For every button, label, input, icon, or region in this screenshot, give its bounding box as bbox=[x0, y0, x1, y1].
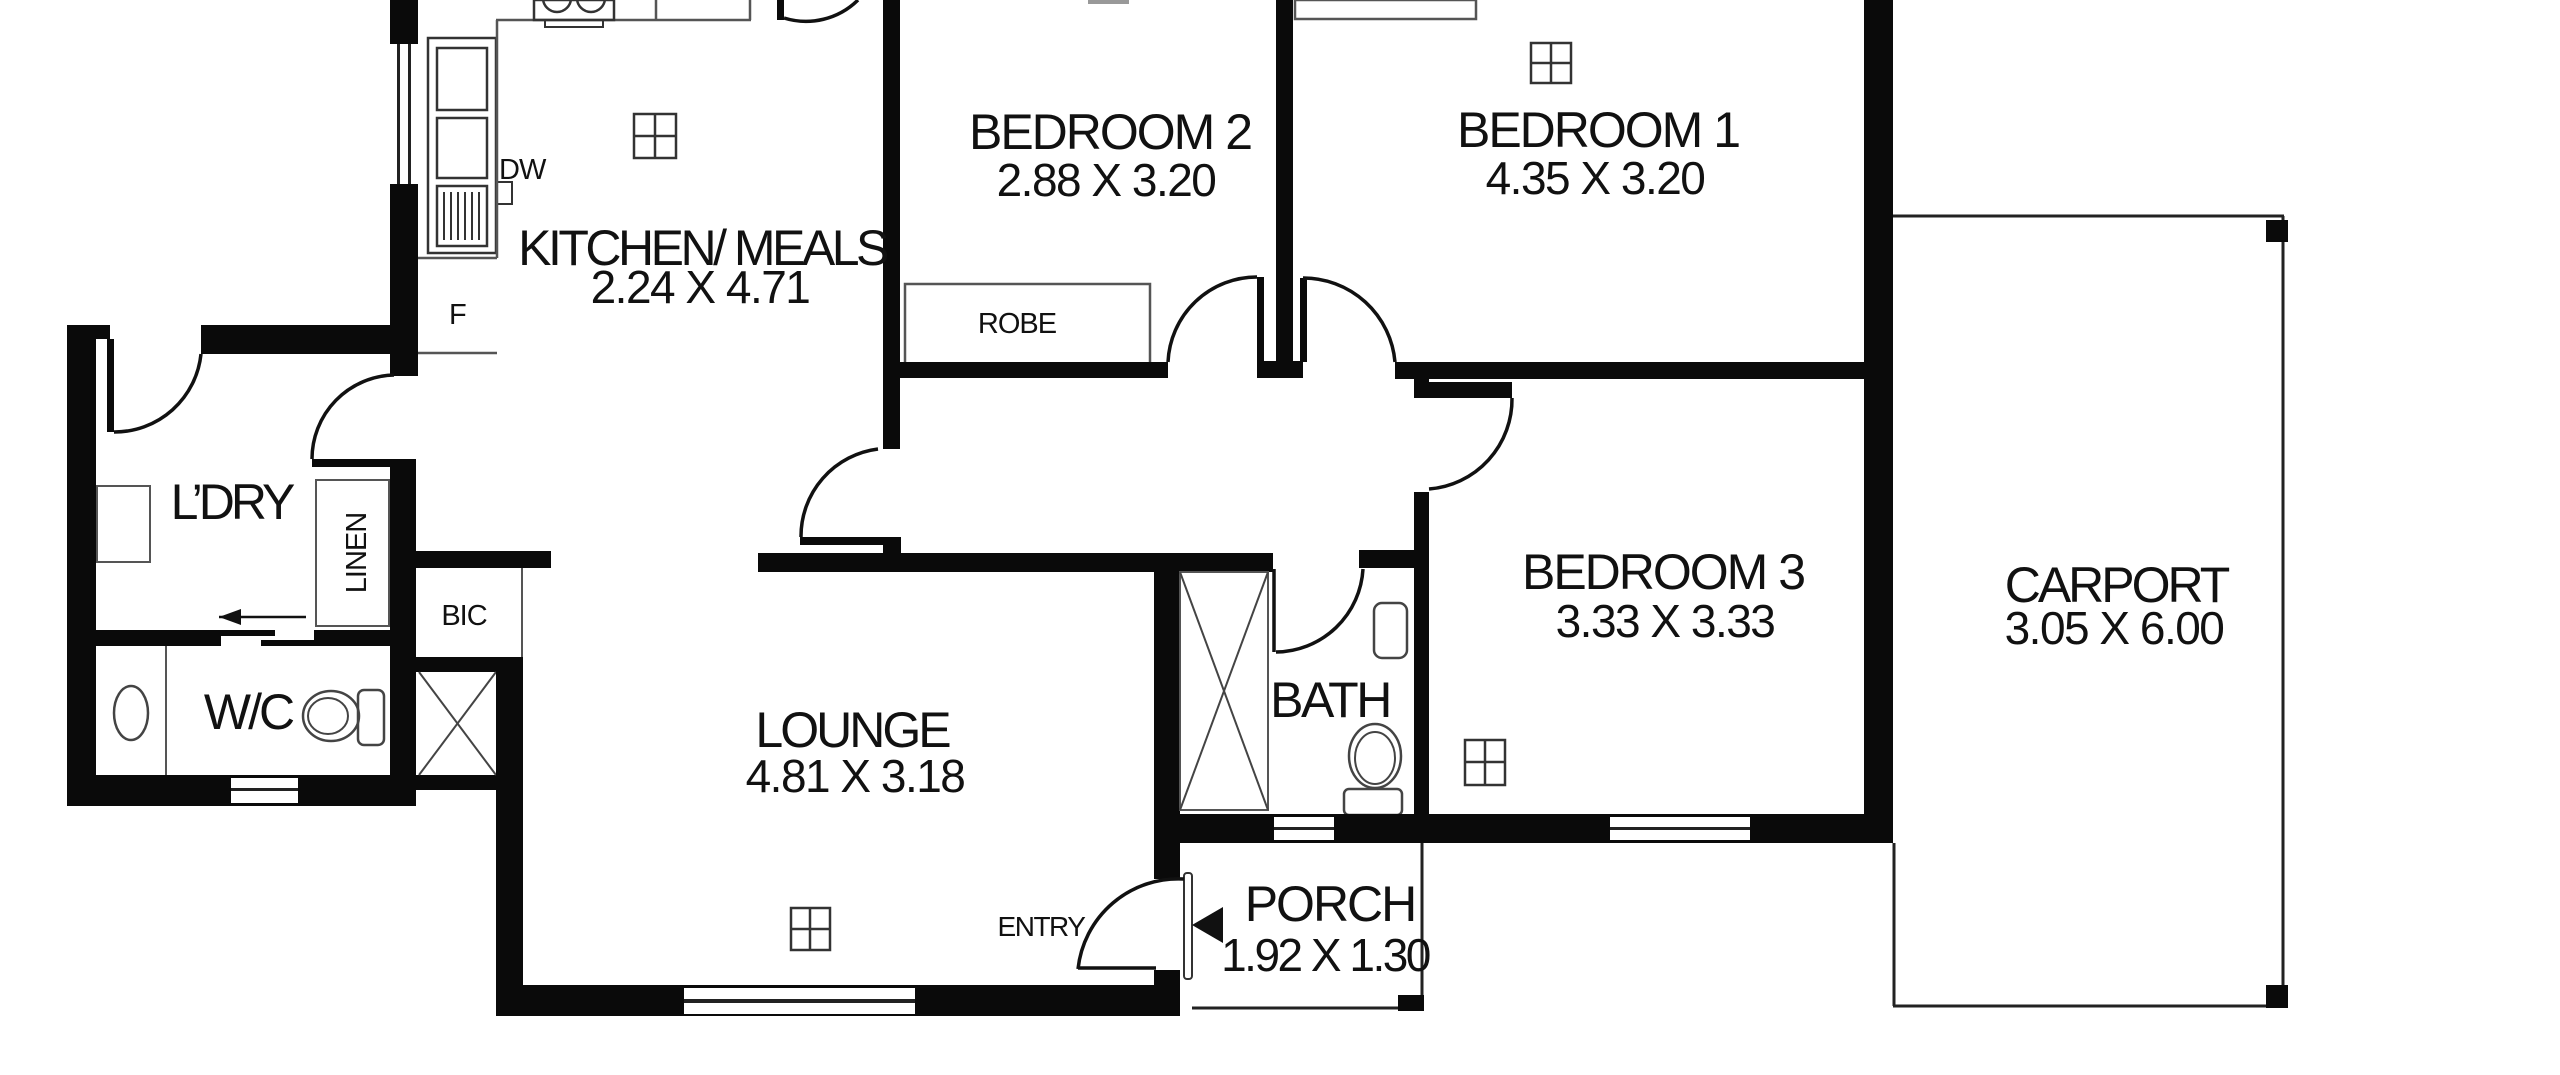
svg-text:F: F bbox=[449, 299, 466, 331]
svg-text:W/C: W/C bbox=[204, 684, 294, 740]
svg-text:3.05 X 6.00: 3.05 X 6.00 bbox=[2005, 602, 2224, 654]
svg-text:BEDROOM 3: BEDROOM 3 bbox=[1522, 544, 1804, 600]
svg-text:4.81 X 3.18: 4.81 X 3.18 bbox=[746, 750, 965, 802]
svg-text:DW: DW bbox=[499, 154, 547, 186]
svg-text:PORCH: PORCH bbox=[1245, 876, 1416, 932]
svg-text:L’DRY: L’DRY bbox=[171, 474, 295, 530]
svg-text:ROBE: ROBE bbox=[978, 308, 1057, 340]
svg-text:4.35 X 3.20: 4.35 X 3.20 bbox=[1486, 152, 1705, 204]
svg-text:BIC: BIC bbox=[441, 600, 486, 632]
svg-text:LINEN: LINEN bbox=[341, 513, 373, 593]
svg-text:3.33 X 3.33: 3.33 X 3.33 bbox=[1556, 595, 1775, 647]
svg-text:BATH: BATH bbox=[1270, 672, 1390, 728]
svg-text:1.92 X 1.30: 1.92 X 1.30 bbox=[1221, 929, 1430, 981]
svg-text:2.24 X 4.71: 2.24 X 4.71 bbox=[591, 261, 810, 313]
svg-text:BEDROOM 2: BEDROOM 2 bbox=[969, 104, 1251, 160]
svg-text:BEDROOM 1: BEDROOM 1 bbox=[1457, 102, 1739, 158]
svg-text:ENTRY: ENTRY bbox=[998, 911, 1087, 942]
svg-text:2.88 X 3.20: 2.88 X 3.20 bbox=[997, 154, 1216, 206]
